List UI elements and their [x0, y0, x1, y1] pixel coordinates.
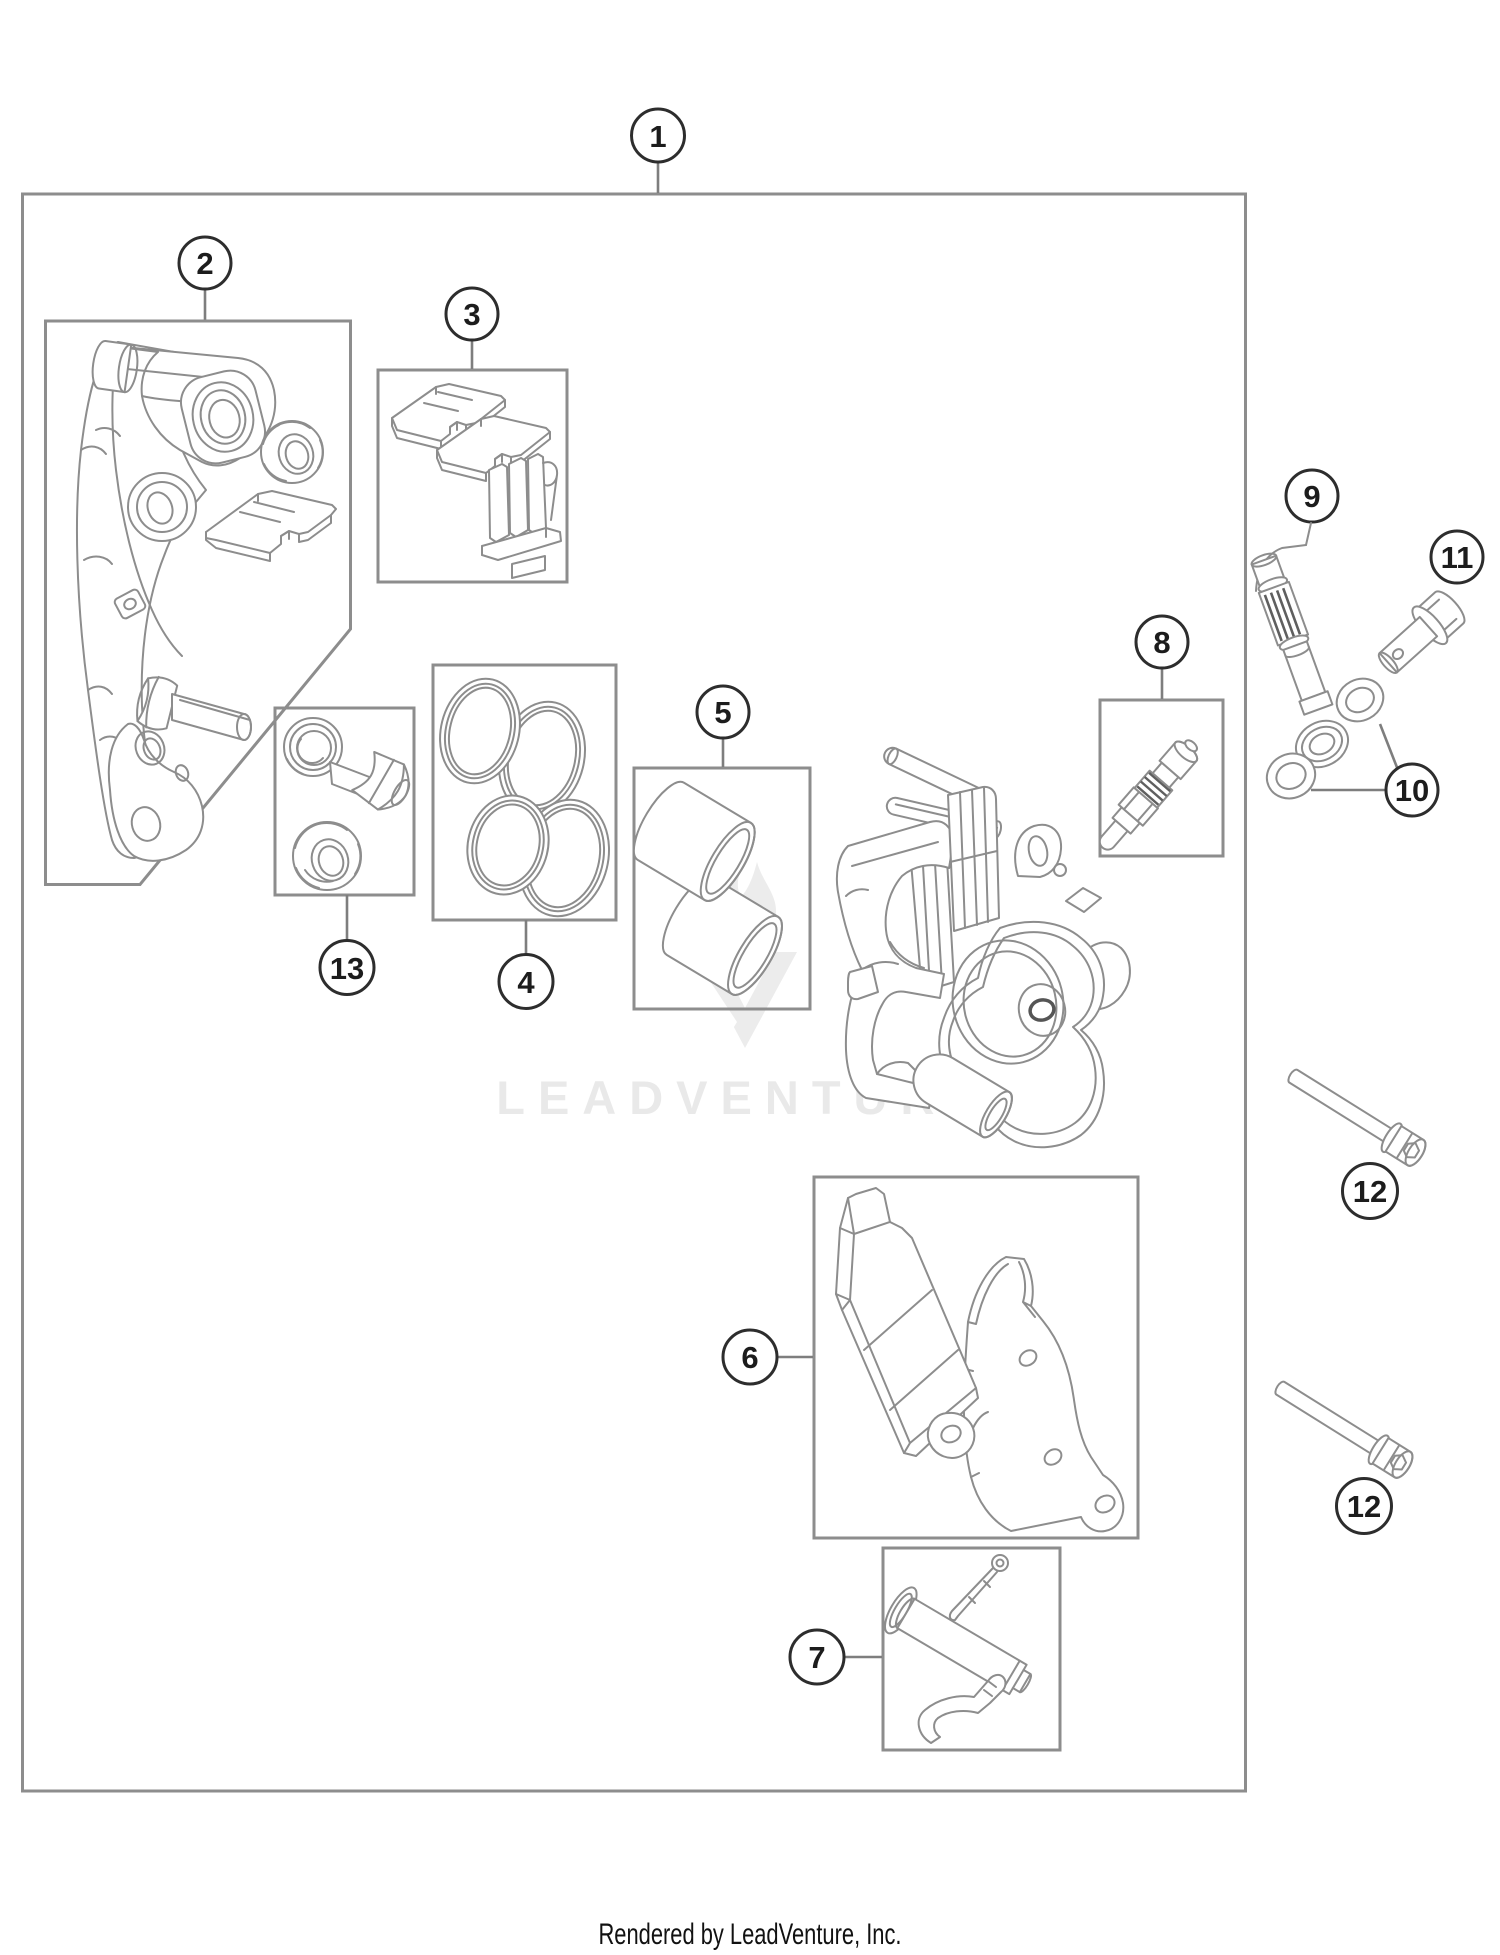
svg-text:9: 9: [1303, 479, 1320, 514]
svg-text:4: 4: [517, 965, 535, 1000]
svg-text:2: 2: [196, 246, 213, 281]
svg-text:10: 10: [1395, 773, 1429, 808]
svg-text:8: 8: [1153, 625, 1170, 660]
svg-text:6: 6: [741, 1340, 758, 1375]
svg-text:11: 11: [1441, 540, 1474, 575]
svg-text:Rendered by LeadVenture, Inc.: Rendered by LeadVenture, Inc.: [598, 1917, 901, 1951]
svg-text:12: 12: [1353, 1174, 1387, 1209]
svg-text:1: 1: [649, 119, 666, 154]
svg-text:3: 3: [463, 297, 480, 332]
svg-text:7: 7: [808, 1640, 825, 1675]
svg-text:12: 12: [1347, 1489, 1381, 1524]
svg-text:5: 5: [714, 695, 731, 730]
svg-text:13: 13: [330, 951, 364, 986]
